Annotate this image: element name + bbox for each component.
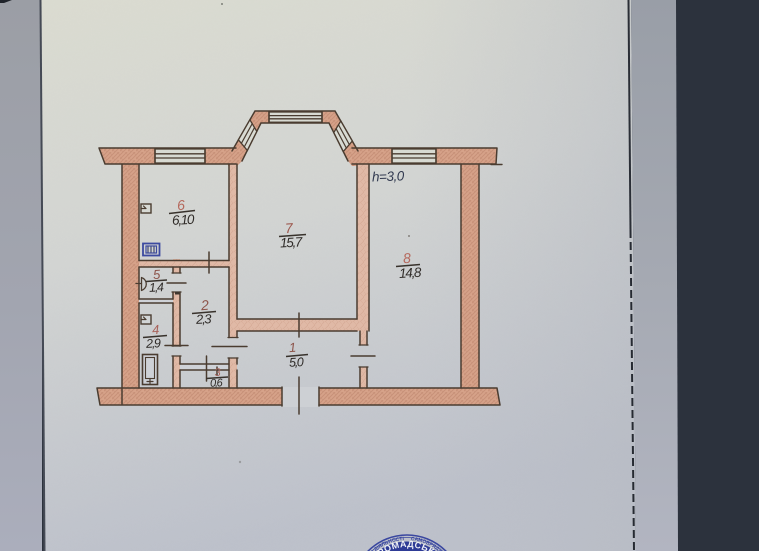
svg-text:2,9: 2,9	[145, 336, 162, 351]
svg-text:1,4: 1,4	[149, 280, 165, 295]
svg-text:h=3,0: h=3,0	[372, 168, 405, 184]
svg-text:15,7: 15,7	[280, 234, 304, 250]
svg-text:14,8: 14,8	[399, 265, 423, 281]
svg-text:6,10: 6,10	[172, 212, 196, 228]
svg-text:5,0: 5,0	[289, 355, 305, 370]
